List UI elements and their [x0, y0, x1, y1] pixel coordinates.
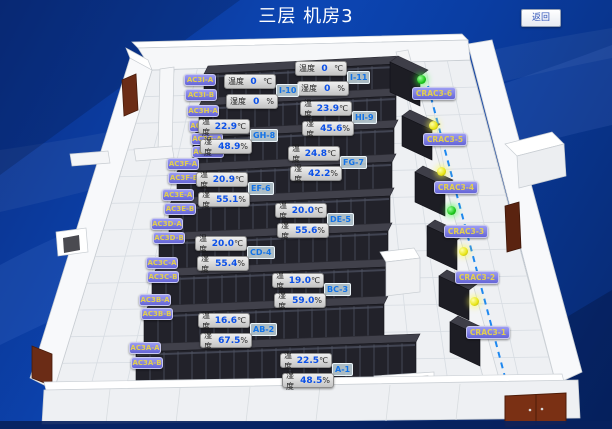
- temp-label: 温度: [202, 116, 215, 138]
- door-right-wall: [505, 202, 521, 252]
- hum-unit: %: [337, 84, 345, 93]
- wall-slot: [63, 235, 80, 253]
- hum-label: 湿度: [281, 220, 295, 242]
- hum-label: 湿度: [201, 253, 215, 275]
- temp-label: 温度: [202, 310, 215, 332]
- crac-button-crac3-1[interactable]: CRAC3-1: [466, 326, 510, 339]
- machine-room-view: 三层 机房3 返回 AC3I-A AC3I-B AC3H-A AC3H-B AC…: [0, 0, 612, 429]
- humidity-readout: 湿度55.1%: [198, 192, 250, 207]
- rack-button-ac3a-b[interactable]: AC3A-B: [131, 357, 163, 369]
- hum-unit: %: [237, 259, 245, 268]
- aisle-tag: HI-9: [352, 111, 377, 124]
- hum-value: 48.9: [218, 142, 240, 152]
- hum-label: 湿度: [294, 163, 308, 185]
- humidity-readout: 湿度55.4%: [197, 256, 249, 271]
- humidity-readout: 湿度48.5%: [282, 373, 334, 388]
- aisle-tag: I-11: [347, 71, 370, 84]
- hum-label: 湿度: [230, 96, 246, 107]
- hum-value: 45.6: [320, 124, 342, 134]
- hum-label: 湿度: [202, 189, 216, 211]
- hum-label: 湿度: [278, 290, 292, 312]
- sensor-group-i10: 温度0℃ I-10 湿度0%: [224, 74, 310, 109]
- hum-unit: %: [317, 226, 325, 235]
- temp-value: 16.6: [215, 316, 237, 326]
- rack-button-ac3c-b[interactable]: AC3C-B: [147, 271, 179, 283]
- temperature-readout: 温度20.9℃: [196, 172, 248, 187]
- crac-button-crac3-2[interactable]: CRAC3-2: [455, 271, 499, 284]
- hum-label: 湿度: [286, 370, 300, 392]
- temp-unit: ℃: [314, 206, 323, 215]
- rack-button-ac3i-a[interactable]: AC3I-A: [184, 74, 216, 86]
- rack-button-ac3e-b[interactable]: AC3E-B: [164, 203, 196, 215]
- sensor-group-de5: 温度20.0℃ DE-5 湿度55.6%: [275, 203, 361, 238]
- temp-unit: ℃: [263, 77, 272, 86]
- temp-unit: ℃: [334, 64, 343, 73]
- temp-unit: ℃: [237, 122, 246, 131]
- crac-button-crac3-3[interactable]: CRAC3-3: [444, 225, 488, 238]
- temp-label: 温度: [284, 350, 297, 372]
- hum-unit: %: [240, 336, 248, 345]
- aisle-tag: CD-4: [247, 246, 275, 259]
- temp-value: 20.9: [213, 175, 235, 185]
- temp-label: 温度: [292, 143, 305, 165]
- crac-status-light: [417, 75, 426, 84]
- hum-unit: %: [330, 169, 338, 178]
- temp-label: 温度: [276, 270, 289, 292]
- rack-button-ac3c-a[interactable]: AC3C-A: [146, 257, 178, 269]
- rack-button-ac3b-b[interactable]: AC3B-B: [141, 308, 173, 320]
- hum-value: 42.2: [308, 169, 330, 179]
- temp-value: 0: [321, 64, 327, 74]
- crac-button-crac3-4[interactable]: CRAC3-4: [434, 181, 478, 194]
- aisle-tag: I-10: [276, 84, 299, 97]
- temperature-readout: 温度16.6℃: [198, 313, 250, 328]
- sensor-group-bc3: 温度19.0℃ BC-3 湿度59.0%: [272, 273, 358, 308]
- aisle-tag: A-1: [332, 363, 353, 376]
- temp-value: 22.5: [297, 356, 319, 366]
- temp-unit: ℃: [237, 316, 246, 325]
- temp-label: 温度: [199, 233, 212, 255]
- crac-status-light: [459, 247, 468, 256]
- sensor-group-gh8: 温度22.9℃ GH-8 湿度48.9%: [198, 119, 284, 154]
- hum-value: 67.5: [218, 336, 240, 346]
- temp-label: 温度: [279, 200, 292, 222]
- humidity-readout: 湿度48.9%: [200, 139, 252, 154]
- temp-value: 20.0: [292, 206, 314, 216]
- hum-value: 55.4: [215, 259, 237, 269]
- temp-value: 24.8: [305, 149, 327, 159]
- crac-status-light: [447, 206, 456, 215]
- aisle-tag: AB-2: [250, 323, 277, 336]
- hum-unit: %: [266, 97, 274, 106]
- temp-unit: ℃: [311, 276, 320, 285]
- hum-value: 48.5: [300, 376, 322, 386]
- hum-value: 55.6: [295, 226, 317, 236]
- hum-unit: %: [240, 142, 248, 151]
- hum-value: 55.1: [216, 195, 238, 205]
- aisle-tag: BC-3: [324, 283, 351, 296]
- hum-label: 湿度: [306, 118, 320, 140]
- sensor-group-ef6: 温度20.9℃ EF-6 湿度55.1%: [196, 172, 282, 207]
- hum-value: 0: [253, 97, 259, 107]
- temp-value: 19.0: [289, 276, 311, 286]
- temp-unit: ℃: [235, 175, 244, 184]
- temp-label: 温度: [228, 76, 244, 87]
- aisle-tag: FG-7: [340, 156, 367, 169]
- rack-button-ac3d-a[interactable]: AC3D-A: [151, 218, 183, 230]
- rack-button-ac3i-b[interactable]: AC3I-B: [185, 89, 217, 101]
- temp-label: 温度: [200, 169, 213, 191]
- humidity-readout: 湿度0%: [226, 94, 278, 109]
- temp-value: 23.9: [317, 104, 339, 114]
- hum-unit: %: [342, 124, 350, 133]
- humidity-readout: 湿度59.0%: [274, 293, 326, 308]
- temp-unit: ℃: [339, 104, 348, 113]
- hum-label: 湿度: [204, 330, 218, 352]
- sensor-group-ab2: 温度16.6℃ AB-2 湿度67.5%: [198, 313, 284, 348]
- crac-status-light: [437, 167, 446, 176]
- temp-value: 22.9: [215, 122, 237, 132]
- rack-button-ac3f-a[interactable]: AC3F-A: [167, 158, 199, 170]
- crac-status-light: [429, 121, 438, 130]
- temp-label: 温度: [299, 63, 315, 74]
- temperature-readout: 温度24.8℃: [288, 146, 340, 161]
- temperature-readout: 温度19.0℃: [272, 273, 324, 288]
- back-button[interactable]: 返回: [521, 9, 561, 27]
- humidity-readout: 湿度67.5%: [200, 333, 252, 348]
- sensor-group-cd4: 温度20.0℃ CD-4 湿度55.4%: [195, 236, 281, 271]
- temp-unit: ℃: [319, 356, 328, 365]
- rack-button-ac3d-b[interactable]: AC3D-B: [153, 232, 185, 244]
- temperature-readout: 温度22.5℃: [280, 353, 332, 368]
- white-cabinet: [380, 248, 420, 296]
- humidity-readout: 湿度55.6%: [277, 223, 329, 238]
- rack-button-ac3b-a[interactable]: AC3B-A: [139, 294, 171, 306]
- hum-value: 59.0: [292, 296, 314, 306]
- hum-unit: %: [238, 195, 246, 204]
- temperature-readout: 温度0℃: [224, 74, 276, 89]
- temperature-readout: 温度20.0℃: [275, 203, 327, 218]
- humidity-readout: 湿度42.2%: [290, 166, 342, 181]
- sensor-group-hi9: 温度23.9℃ HI-9 湿度45.6%: [300, 101, 386, 136]
- crac-button-crac3-6[interactable]: CRAC3-6: [412, 87, 456, 100]
- sensor-group-a1: 温度22.5℃ A-1 湿度48.5%: [280, 353, 366, 388]
- rack-button-ac3e-a[interactable]: AC3E-A: [162, 189, 194, 201]
- rack-button-ac3a-a[interactable]: AC3A-A: [129, 342, 161, 354]
- hum-unit: %: [322, 376, 330, 385]
- aisle-tag: GH-8: [250, 129, 278, 142]
- temp-value: 0: [250, 77, 256, 87]
- temperature-readout: 温度20.0℃: [195, 236, 247, 251]
- crac-status-light: [470, 297, 479, 306]
- crac-button-crac3-5[interactable]: CRAC3-5: [423, 133, 467, 146]
- hum-label: 湿度: [204, 136, 218, 158]
- temperature-readout: 温度22.9℃: [198, 119, 250, 134]
- temperature-readout: 温度23.9℃: [300, 101, 352, 116]
- aisle-tag: EF-6: [248, 182, 274, 195]
- temp-label: 温度: [304, 98, 317, 120]
- temp-value: 20.0: [212, 239, 234, 249]
- humidity-readout: 湿度45.6%: [302, 121, 354, 136]
- temp-unit: ℃: [327, 149, 336, 158]
- hum-value: 0: [324, 84, 330, 94]
- door-upper-left: [122, 74, 138, 116]
- hum-unit: %: [314, 296, 322, 305]
- aisle-tag: DE-5: [327, 213, 354, 226]
- sensor-group-fg7: 温度24.8℃ FG-7 湿度42.2%: [288, 146, 374, 181]
- temp-unit: ℃: [234, 239, 243, 248]
